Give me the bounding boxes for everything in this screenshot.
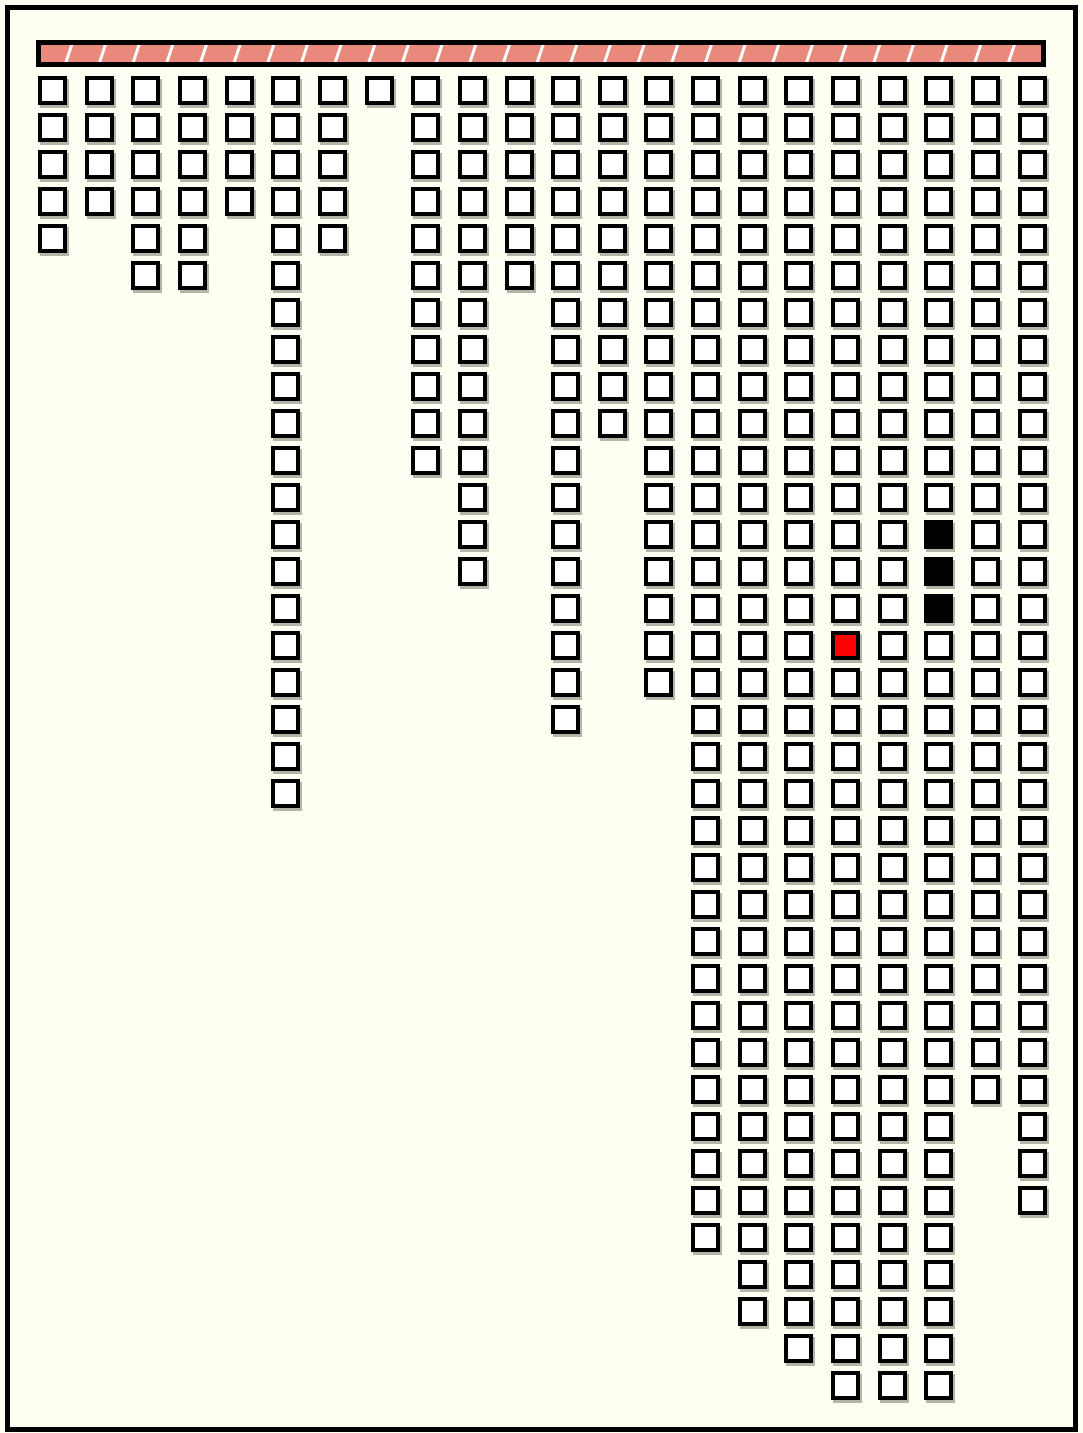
grid-cell (131, 187, 160, 216)
grid-cell (831, 1149, 860, 1178)
grid-cell (784, 779, 813, 808)
grid-cell (971, 372, 1000, 401)
grid-cell (831, 1260, 860, 1289)
grid-cell (831, 742, 860, 771)
grid-cell (411, 409, 440, 438)
grid-cell (691, 372, 720, 401)
grid-cell (738, 1112, 767, 1141)
grid-cell (878, 261, 907, 290)
grid-cell (924, 261, 953, 290)
grid-cell (784, 964, 813, 993)
grid-cell (878, 520, 907, 549)
grid-cell (738, 890, 767, 919)
grid-cell (271, 779, 300, 808)
grid-cell (644, 409, 673, 438)
grid-cell (878, 150, 907, 179)
grid-cell (924, 1334, 953, 1363)
grid-cell (131, 261, 160, 290)
grid-cell (924, 890, 953, 919)
grid-cell (831, 409, 860, 438)
grid-cell (551, 76, 580, 105)
grid-cell (271, 76, 300, 105)
grid-cell (784, 1001, 813, 1030)
grid-cell (784, 557, 813, 586)
grid-cell (1018, 261, 1047, 290)
grid-cell (644, 150, 673, 179)
grid-cell (1018, 1149, 1047, 1178)
grid-cell (784, 1223, 813, 1252)
grid-cell (738, 409, 767, 438)
grid-cell (598, 187, 627, 216)
grid-cell (924, 1260, 953, 1289)
grid-cell (878, 1223, 907, 1252)
grid-cell (878, 1112, 907, 1141)
grid-cell (878, 113, 907, 142)
grid-cell (551, 446, 580, 475)
grid-cell (458, 261, 487, 290)
red-cell (831, 631, 860, 660)
grid-cell (1018, 557, 1047, 586)
grid-cell (551, 520, 580, 549)
grid-cell (551, 224, 580, 253)
grid-cell (738, 631, 767, 660)
grid-cell (1018, 298, 1047, 327)
grid-cell (784, 1260, 813, 1289)
grid-cell (271, 150, 300, 179)
grid-cell (878, 409, 907, 438)
grid-cell (924, 853, 953, 882)
grid-cell (738, 298, 767, 327)
grid-cell (691, 927, 720, 956)
grid-cell (411, 446, 440, 475)
grid-cell (271, 298, 300, 327)
grid-cell (551, 187, 580, 216)
grid-cell (924, 1112, 953, 1141)
grid-cell (784, 1334, 813, 1363)
grid-cell (1018, 483, 1047, 512)
grid-cell (691, 705, 720, 734)
grid-cell (971, 631, 1000, 660)
grid-cell (458, 187, 487, 216)
grid-cell (784, 446, 813, 475)
grid-cell (85, 113, 114, 142)
grid-cell (784, 668, 813, 697)
grid-cell (831, 261, 860, 290)
grid-cell (1018, 816, 1047, 845)
grid-cell (458, 113, 487, 142)
grid-cell (738, 446, 767, 475)
grid-cell (1018, 409, 1047, 438)
grid-cell (505, 224, 534, 253)
grid-cell (924, 1186, 953, 1215)
grid-cell (411, 76, 440, 105)
grid-cell (784, 261, 813, 290)
grid-cell (738, 1038, 767, 1067)
grid-cell (924, 187, 953, 216)
grid-cell (271, 261, 300, 290)
grid-cell (271, 742, 300, 771)
grid-cell (831, 76, 860, 105)
grid-cell (878, 668, 907, 697)
grid-cell (1018, 1112, 1047, 1141)
grid-cell (831, 520, 860, 549)
grid-cell (878, 335, 907, 364)
grid-cell (691, 224, 720, 253)
grid-cell (924, 1149, 953, 1178)
grid-cell (831, 150, 860, 179)
grid-cell (598, 335, 627, 364)
grid-cell (38, 224, 67, 253)
grid-cell (691, 409, 720, 438)
grid-cell (924, 1038, 953, 1067)
grid-cell (1018, 964, 1047, 993)
grid-cell (691, 853, 720, 882)
black-cell (924, 557, 953, 586)
grid-cell (458, 298, 487, 327)
grid-cell (738, 520, 767, 549)
grid-cell (598, 261, 627, 290)
grid-cell (971, 668, 1000, 697)
grid-cell (924, 631, 953, 660)
grid-cell (738, 113, 767, 142)
grid-cell (831, 113, 860, 142)
grid-cell (738, 742, 767, 771)
grid-cell (318, 113, 347, 142)
grid-cell (85, 150, 114, 179)
grid-cell (271, 335, 300, 364)
grid-cell (551, 631, 580, 660)
grid-cell (551, 409, 580, 438)
grid-cell (1018, 1001, 1047, 1030)
grid-cell (971, 1075, 1000, 1104)
grid-cell (38, 113, 67, 142)
grid-cell (784, 1297, 813, 1326)
grid-cell (598, 409, 627, 438)
grid-cell (551, 261, 580, 290)
grid-cell (971, 483, 1000, 512)
grid-cell (1018, 705, 1047, 734)
grid-cell (644, 483, 673, 512)
grid-cell (971, 76, 1000, 105)
grid-cell (85, 187, 114, 216)
grid-cell (691, 113, 720, 142)
grid-cell (831, 668, 860, 697)
grid-cell (458, 76, 487, 105)
grid-cell (225, 113, 254, 142)
grid-cell (691, 335, 720, 364)
grid-cell (271, 113, 300, 142)
grid-cell (551, 335, 580, 364)
grid-cell (1018, 594, 1047, 623)
grid-cell (691, 1186, 720, 1215)
grid-cell (644, 298, 673, 327)
grid-cell (1018, 113, 1047, 142)
grid-cell (924, 964, 953, 993)
grid-cell (691, 1223, 720, 1252)
grid-cell (131, 76, 160, 105)
grid-cell (644, 446, 673, 475)
grid-cell (458, 446, 487, 475)
grid-cell (738, 557, 767, 586)
grid-cell (1018, 927, 1047, 956)
grid-cell (644, 372, 673, 401)
grid-cell (878, 742, 907, 771)
grid-cell (878, 927, 907, 956)
grid-cell (878, 298, 907, 327)
grid-cell (644, 113, 673, 142)
grid-cell (878, 705, 907, 734)
grid-cell (271, 224, 300, 253)
grid-cell (831, 779, 860, 808)
grid-cell (831, 557, 860, 586)
grid-cell (784, 1186, 813, 1215)
grid-cell (1018, 520, 1047, 549)
grid-cell (225, 187, 254, 216)
grid-cell (178, 150, 207, 179)
grid-cell (318, 150, 347, 179)
grid-cell (831, 853, 860, 882)
grid-cell (598, 224, 627, 253)
grid-cell (644, 335, 673, 364)
grid-cell (784, 298, 813, 327)
grid-cell (878, 1075, 907, 1104)
grid-cell (178, 261, 207, 290)
grid-cell (831, 1001, 860, 1030)
grid-cell (644, 594, 673, 623)
grid-cell (738, 1149, 767, 1178)
grid-cell (971, 890, 1000, 919)
grid-cell (971, 927, 1000, 956)
grid-cell (691, 742, 720, 771)
grid-cell (924, 1371, 953, 1400)
grid-cell (784, 224, 813, 253)
grid-cell (691, 668, 720, 697)
grid-cell (784, 816, 813, 845)
grid-cell (878, 1334, 907, 1363)
grid-cell (738, 594, 767, 623)
grid-cell (1018, 631, 1047, 660)
grid-cell (691, 557, 720, 586)
grid-cell (878, 631, 907, 660)
grid-cell (971, 964, 1000, 993)
grid-cell (831, 1038, 860, 1067)
grid-cell (271, 594, 300, 623)
grid-cell (644, 631, 673, 660)
grid-cell (784, 483, 813, 512)
grid-cell (505, 261, 534, 290)
grid-cell (784, 853, 813, 882)
grid-cell (924, 483, 953, 512)
grid-cell (878, 446, 907, 475)
grid-cell (971, 779, 1000, 808)
grid-cell (691, 816, 720, 845)
grid-cell (878, 779, 907, 808)
grid-cell (1018, 890, 1047, 919)
grid-cell (784, 705, 813, 734)
grid-cell (458, 483, 487, 512)
grid-cell (691, 261, 720, 290)
grid-cell (738, 964, 767, 993)
grid-cell (271, 483, 300, 512)
grid-cell (831, 594, 860, 623)
grid-cell (691, 1075, 720, 1104)
grid-cell (738, 668, 767, 697)
grid-cell (551, 668, 580, 697)
grid-cell (738, 261, 767, 290)
grid-cell (551, 594, 580, 623)
grid-cell (878, 483, 907, 512)
black-cell (924, 594, 953, 623)
grid-cell (644, 520, 673, 549)
grid-cell (738, 1297, 767, 1326)
grid-cell (784, 1149, 813, 1178)
grid-cell (784, 520, 813, 549)
grid-cell (411, 335, 440, 364)
grid-cell (878, 1186, 907, 1215)
grid-cell (971, 520, 1000, 549)
grid-cell (878, 890, 907, 919)
grid-cell (598, 150, 627, 179)
grid-cell (924, 742, 953, 771)
grid-cell (644, 261, 673, 290)
grid-cell (738, 224, 767, 253)
grid-cell (878, 1297, 907, 1326)
grid-cell (878, 1260, 907, 1289)
grid-cell (505, 76, 534, 105)
grid-cell (505, 113, 534, 142)
grid-cell (784, 409, 813, 438)
grid-cell (551, 298, 580, 327)
grid-cell (924, 705, 953, 734)
grid-cell (225, 76, 254, 105)
grid-cell (831, 964, 860, 993)
grid-cell (878, 1038, 907, 1067)
grid-cell (924, 372, 953, 401)
grid-cell (644, 76, 673, 105)
grid-cell (738, 150, 767, 179)
grid-cell (1018, 668, 1047, 697)
grid-cell (831, 298, 860, 327)
grid-cell (831, 446, 860, 475)
grid-cell (411, 187, 440, 216)
grid-cell (831, 1297, 860, 1326)
grid-cell (691, 520, 720, 549)
grid-cell (178, 76, 207, 105)
grid-cell (1018, 224, 1047, 253)
grid-cell (971, 594, 1000, 623)
grid-cell (458, 520, 487, 549)
grid-cell (505, 150, 534, 179)
grid-cell (551, 113, 580, 142)
grid-cell (971, 705, 1000, 734)
grid-cell (318, 187, 347, 216)
grid-cell (691, 1001, 720, 1030)
grid-cell (271, 520, 300, 549)
grid-cell (365, 76, 394, 105)
grid-cell (971, 298, 1000, 327)
grid-cell (691, 631, 720, 660)
grid-cell (738, 372, 767, 401)
grid-cell (831, 1223, 860, 1252)
grid-cell (271, 409, 300, 438)
grid-cell (178, 113, 207, 142)
grid-cell (691, 1038, 720, 1067)
grid-cell (1018, 446, 1047, 475)
grid-cell (831, 187, 860, 216)
grid-cell (831, 890, 860, 919)
grid-cell (271, 668, 300, 697)
grid-cell (411, 261, 440, 290)
grid-cell (738, 1186, 767, 1215)
grid-cell (271, 446, 300, 475)
grid-cell (784, 1112, 813, 1141)
grid-cell (784, 890, 813, 919)
grid-cell (38, 150, 67, 179)
grid-cell (738, 1001, 767, 1030)
grid-cell (738, 816, 767, 845)
grid-cell (924, 113, 953, 142)
grid-cell (784, 76, 813, 105)
grid-cell (831, 816, 860, 845)
grid-cell (318, 76, 347, 105)
grid-cell (878, 372, 907, 401)
grid-cell (738, 187, 767, 216)
grid-cell (225, 150, 254, 179)
grid-cell (738, 1260, 767, 1289)
grid-cell (971, 261, 1000, 290)
grid-cell (784, 150, 813, 179)
grid-cell (411, 150, 440, 179)
grid-cell (691, 1112, 720, 1141)
grid-cell (784, 1038, 813, 1067)
grid-cell (924, 1001, 953, 1030)
grid-cell (598, 298, 627, 327)
grid-cell (411, 298, 440, 327)
grid-cell (784, 113, 813, 142)
grid-cell (551, 150, 580, 179)
grid-cell (691, 187, 720, 216)
grid-cell (38, 187, 67, 216)
grid-cell (831, 335, 860, 364)
grid-cell (784, 631, 813, 660)
grid-cell (458, 409, 487, 438)
grid-cell (878, 1371, 907, 1400)
grid-cell (831, 705, 860, 734)
grid-cell (691, 76, 720, 105)
grid-cell (784, 372, 813, 401)
black-cell (924, 520, 953, 549)
grid-cell (831, 1334, 860, 1363)
grid-cell (458, 557, 487, 586)
grid-cell (644, 187, 673, 216)
grid-cell (691, 298, 720, 327)
grid-cell (598, 372, 627, 401)
grid-cell (971, 1001, 1000, 1030)
grid-cell (878, 816, 907, 845)
grid-cell (1018, 1038, 1047, 1067)
hatched-support-bar (34, 38, 1048, 71)
grid-cell (178, 224, 207, 253)
grid-cell (971, 816, 1000, 845)
grid-cell (1018, 187, 1047, 216)
grid-cell (551, 483, 580, 512)
grid-cell (878, 964, 907, 993)
grid-cell (738, 483, 767, 512)
grid-cell (831, 1186, 860, 1215)
grid-cell (1018, 76, 1047, 105)
grid-cell (831, 1075, 860, 1104)
grid-cell (85, 76, 114, 105)
